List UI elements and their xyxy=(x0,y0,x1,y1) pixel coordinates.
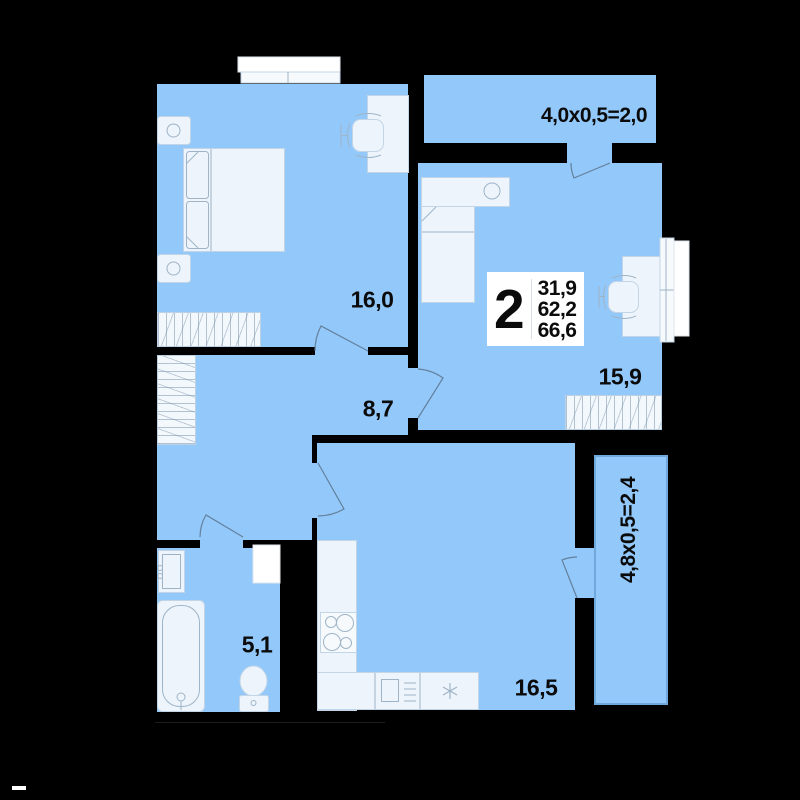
living-area-value: 31,9 xyxy=(538,278,577,299)
kitchen-area-label: 16,5 xyxy=(515,675,558,702)
room-hall-lower xyxy=(157,435,312,540)
window-icon xyxy=(238,57,340,83)
area-without-balcony-value: 62,2 xyxy=(538,299,577,320)
rooms-count: 2 xyxy=(494,282,523,337)
doorway-kitchen xyxy=(312,463,317,518)
info-divider xyxy=(531,279,532,339)
doorway-bathroom xyxy=(200,540,243,548)
wardrobe-icon xyxy=(157,312,261,347)
bedroom2-area-label: 15,9 xyxy=(599,364,642,391)
room-kitchen xyxy=(317,443,575,710)
total-area-value: 66,6 xyxy=(538,320,577,341)
room-bathroom xyxy=(157,548,280,712)
doorway-bedroom xyxy=(315,347,368,355)
hall-area-label: 8,7 xyxy=(363,396,393,423)
doorway-balcony-right xyxy=(575,548,594,598)
apartment-info-box: 2 31,9 62,2 66,6 xyxy=(487,272,584,346)
corner-dash xyxy=(12,786,26,790)
wardrobe-icon xyxy=(157,355,196,445)
doorway-balcony-top xyxy=(567,143,612,163)
window-icon xyxy=(660,238,689,342)
balcony-top-label: 4,0x0,5=2,0 xyxy=(541,104,647,128)
areas-column: 31,9 62,2 66,6 xyxy=(538,278,577,341)
bedroom-area-label: 16,0 xyxy=(351,287,394,314)
bathroom-area-label: 5,1 xyxy=(242,632,272,659)
balcony-right-label: 4,8x0,5=2,4 xyxy=(617,477,641,583)
wardrobe-icon xyxy=(565,395,662,430)
outer-wall-edge-line xyxy=(155,722,385,723)
doorway-bedroom2 xyxy=(408,368,418,418)
floor-plan: 16,0 15,9 8,7 5,1 16,5 4,0x0,5=2,0 4,8x0… xyxy=(0,0,800,800)
